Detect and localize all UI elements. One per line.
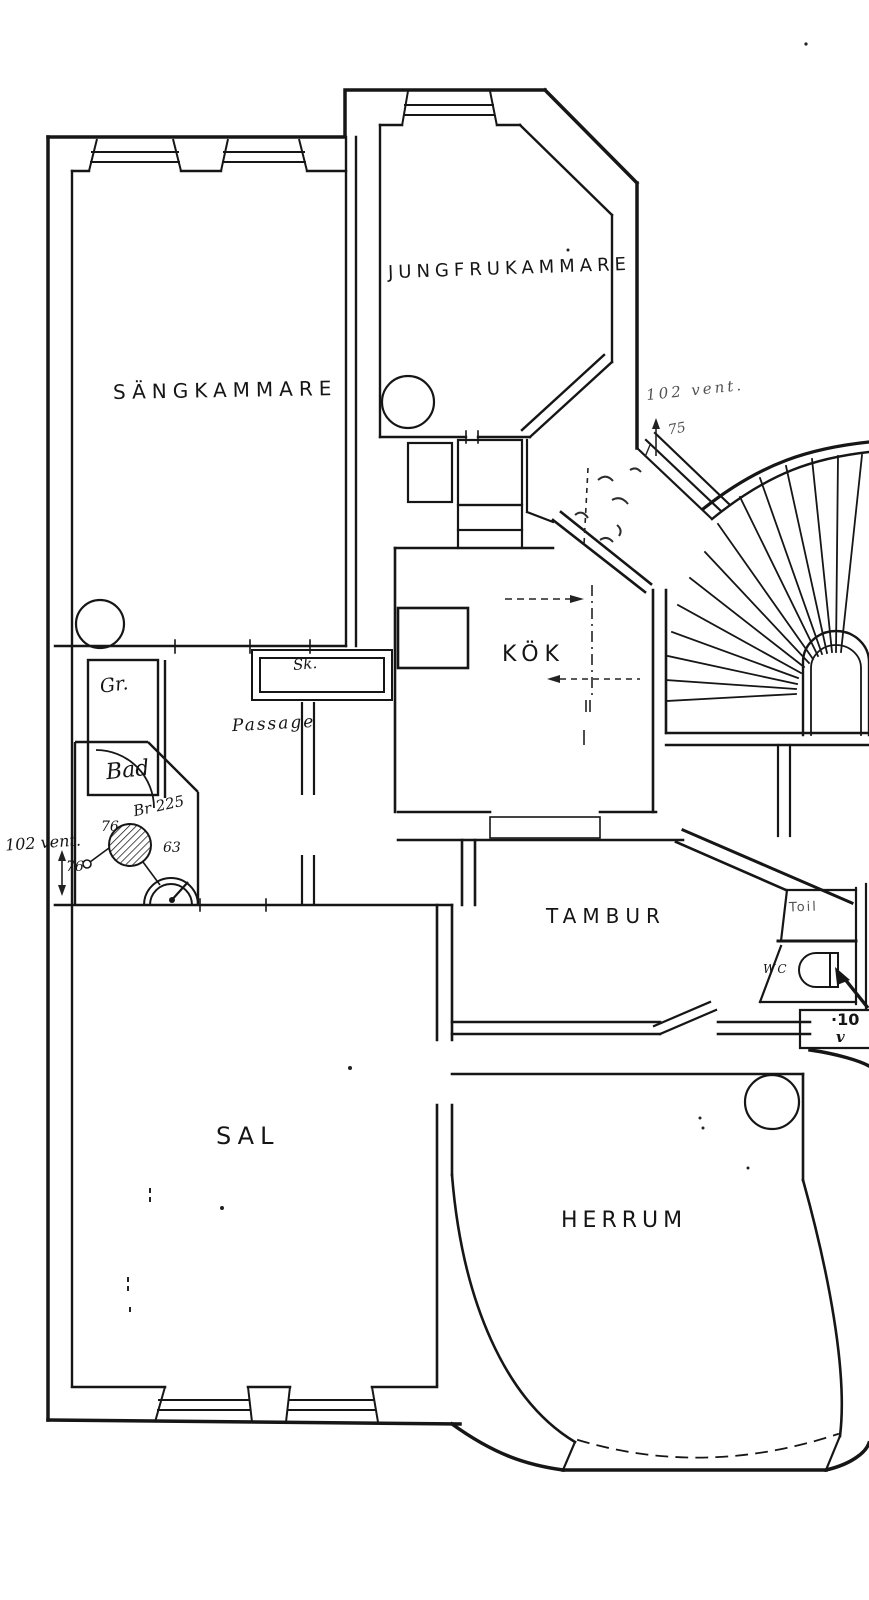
room-label-kok: KÖK [502, 644, 565, 666]
sal-windows [155, 1387, 378, 1422]
round-stove-icon [76, 600, 124, 648]
passage-walls [302, 702, 314, 905]
kok-walls [395, 512, 683, 840]
jungfrukammare-walls [380, 125, 612, 443]
kok-dashed-marks [505, 468, 640, 745]
floor-plan: SÄNGKAMMARE JUNGFRUKAMMARE KÖK TAMBUR SA… [0, 0, 869, 1600]
annotation-edge-cut-line1: ·10 [831, 1012, 859, 1028]
closet-walls [408, 440, 553, 548]
plan-linework [0, 0, 869, 1600]
room-label-bad: Bad [105, 758, 150, 784]
annotation-right-vent-width: 75 [667, 421, 687, 438]
room-label-toil: Toil [789, 900, 818, 914]
room-label-herrum: HERRUM [561, 1210, 687, 1232]
room-label-sangkammare: SÄNGKAMMARE [113, 378, 338, 402]
bath-fixtures [83, 824, 198, 905]
room-label-sal: SAL [216, 1124, 279, 1148]
herrum-walls [452, 1074, 842, 1470]
jungfrukammare-window [402, 91, 497, 126]
sangkammare-walls [55, 137, 356, 1385]
wc-bowl [799, 953, 838, 987]
sangkammare-windows [89, 139, 307, 171]
room-label-skafferi: Sk. [292, 656, 317, 673]
tambur-walls [452, 830, 852, 1034]
room-label-wc: WC [763, 963, 789, 975]
stair-treads [666, 455, 862, 701]
skafferi-shelf [252, 650, 392, 700]
room-label-tambur: TAMBUR [546, 906, 666, 926]
annotation-edge-cut-line2: v [836, 1030, 845, 1045]
round-stove-icon [382, 376, 434, 428]
annotation-bath-63: 63 [163, 841, 181, 855]
annotation-bath-width: 76 [101, 820, 119, 834]
room-label-garderob: Gr. [99, 674, 130, 697]
annotation-left-vent-width: 76 [66, 860, 84, 874]
round-stove-icon [745, 1075, 799, 1129]
outer-walls [48, 90, 869, 1470]
left-vent-arrow-icon [58, 850, 66, 896]
kitchen-stove-chimney [398, 608, 468, 668]
fan-staircase [637, 433, 869, 836]
room-label-passage: Passage [232, 714, 316, 735]
